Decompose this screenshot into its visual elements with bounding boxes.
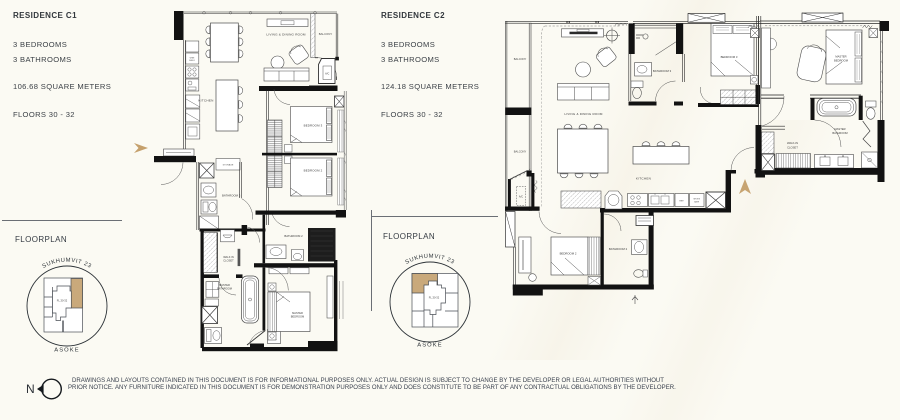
- svg-text:BATH: BATH: [694, 200, 700, 203]
- svg-text:BALCONY: BALCONY: [514, 150, 527, 154]
- svg-text:MASTER: MASTER: [834, 127, 845, 131]
- svg-text:BALCONY: BALCONY: [319, 32, 333, 36]
- svg-text:ASOKE: ASOKE: [417, 343, 442, 349]
- svg-text:ASOKE: ASOKE: [54, 348, 79, 354]
- svg-text:STORAGE: STORAGE: [223, 164, 234, 167]
- svg-text:BATHROOM: BATHROOM: [217, 286, 232, 290]
- svg-text:KITCHEN: KITCHEN: [636, 177, 651, 181]
- svg-text:BEDROOM 2: BEDROOM 2: [560, 252, 577, 256]
- svg-text:CLOSET: CLOSET: [787, 146, 798, 150]
- svg-text:BEDROOM 3: BEDROOM 3: [304, 123, 323, 127]
- svg-text:A/C: A/C: [325, 73, 329, 76]
- svg-text:FL.30-32: FL.30-32: [57, 299, 68, 303]
- svg-text:MASTER: MASTER: [219, 283, 230, 287]
- svg-text:BALCONY: BALCONY: [514, 57, 527, 61]
- svg-text:FL.30-32: FL.30-32: [429, 296, 440, 300]
- svg-text:WALK-IN: WALK-IN: [787, 141, 798, 145]
- svg-text:BATHROOM 2: BATHROOM 2: [284, 234, 303, 238]
- svg-text:BATHROOM 2: BATHROOM 2: [609, 247, 628, 251]
- svg-text:BATHROOM 3: BATHROOM 3: [653, 69, 672, 73]
- svg-text:REF.: REF.: [679, 201, 684, 203]
- svg-text:BEDROOM: BEDROOM: [291, 315, 304, 319]
- svg-text:A/C: A/C: [519, 196, 523, 199]
- svg-text:SUKHUMVIT 23: SUKHUMVIT 23: [405, 254, 456, 266]
- svg-text:SHOES: SHOES: [693, 199, 700, 201]
- svg-text:LIVING & DINING ROOM: LIVING & DINING ROOM: [564, 112, 602, 116]
- svg-text:BATHROOM: BATHROOM: [832, 131, 848, 135]
- svg-text:BEDROOM 2: BEDROOM 2: [304, 168, 323, 172]
- svg-text:LIVING & DINING ROOM: LIVING & DINING ROOM: [266, 32, 305, 36]
- svg-text:SUKHUMVIT 23: SUKHUMVIT 23: [42, 258, 93, 270]
- svg-text:N: N: [26, 382, 35, 396]
- svg-text:CLOSET: CLOSET: [223, 259, 234, 263]
- svg-text:BATHROOM 3: BATHROOM 3: [222, 194, 241, 198]
- svg-text:MASTER: MASTER: [835, 55, 846, 59]
- svg-text:BEDROOM: BEDROOM: [834, 58, 849, 62]
- svg-text:WALK IN: WALK IN: [223, 255, 234, 259]
- svg-text:SHELF: SHELF: [189, 60, 196, 62]
- svg-text:BEDROOM 3: BEDROOM 3: [721, 55, 738, 59]
- svg-text:KITCHEN: KITCHEN: [198, 99, 213, 103]
- svg-text:MASTER: MASTER: [292, 311, 303, 315]
